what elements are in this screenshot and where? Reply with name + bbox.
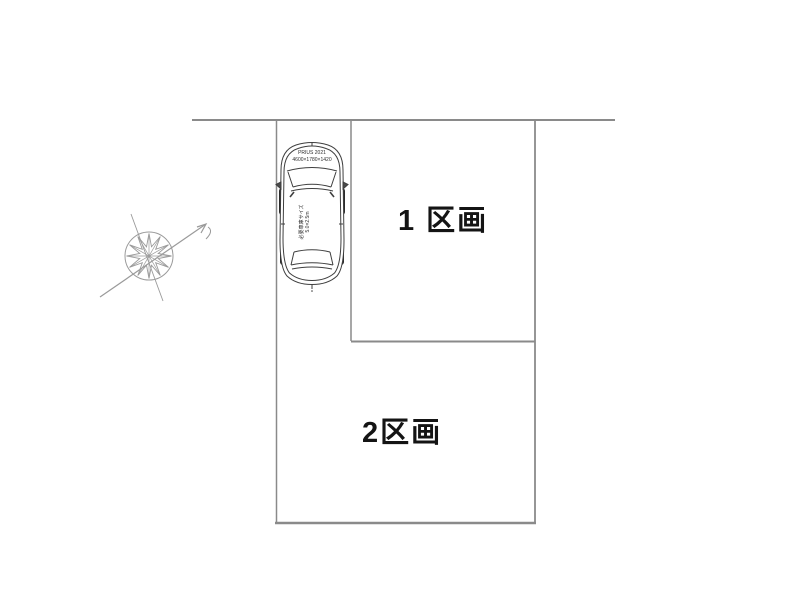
car-top-view xyxy=(276,143,348,292)
plot1-label: 1 区画 xyxy=(398,207,488,236)
diagram-graphics xyxy=(0,0,800,600)
car-size-label: 4600×1780×1420 xyxy=(280,157,344,163)
car-model-label: PRIUS 2021 xyxy=(280,150,344,156)
car-note-vertical: 必要車庫サイズ 5.0×2.5m xyxy=(299,191,311,253)
car-rear-antenna-dot xyxy=(311,290,313,292)
car-mirror-right xyxy=(343,182,348,189)
compass-spokes xyxy=(127,234,172,279)
plot2-label: 2区画 xyxy=(362,419,442,448)
site-plan-diagram: 1 区画 2区画 PRIUS 2021 4600×1780×1420 必要車庫サ… xyxy=(0,0,800,600)
north-arrow-fletch xyxy=(206,227,211,239)
north-arrow-head xyxy=(197,224,206,233)
car-note-line2: 5.0×2.5m xyxy=(305,191,311,253)
parcel-boundaries xyxy=(192,120,615,523)
north-arrow-line xyxy=(100,224,206,297)
north-arrow-compass xyxy=(100,214,211,301)
